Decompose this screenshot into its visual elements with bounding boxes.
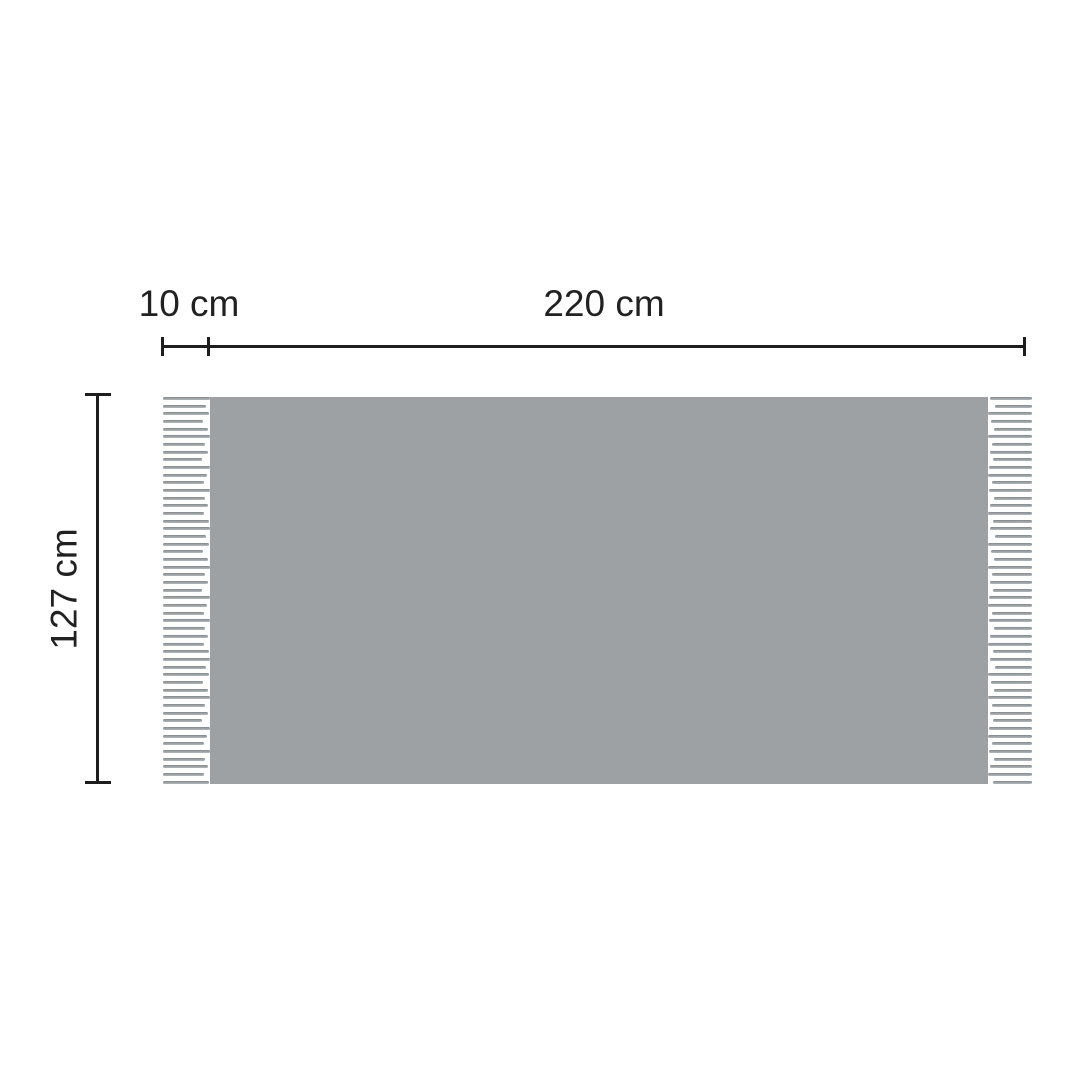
fringe-strand: [163, 451, 208, 454]
fringe-strand: [991, 420, 1032, 423]
dimension-diagram: 10 cm 220 cm 127 cm: [0, 0, 1080, 1080]
fringe-strand: [163, 543, 209, 546]
fringe-strand: [163, 712, 208, 715]
fringe-strand: [989, 727, 1032, 730]
dimension-tick-left: [161, 337, 164, 356]
dimension-tick-bottom: [85, 781, 111, 784]
fringe-strand: [992, 742, 1032, 745]
fringe-strand: [993, 650, 1032, 653]
fringe-strand: [988, 735, 1032, 738]
fringe-strand: [163, 627, 205, 630]
fringe-strand: [992, 481, 1032, 484]
fringe-strand: [163, 428, 208, 431]
fringe-strand: [991, 550, 1032, 553]
fringe-strand: [988, 474, 1032, 477]
fringe-strand: [163, 696, 210, 699]
dimension-tick-right: [1023, 337, 1026, 356]
fringe-strand: [990, 504, 1032, 507]
fringe-strand: [163, 619, 210, 622]
fringe-strand: [994, 689, 1032, 692]
fringe-strand: [163, 512, 204, 515]
fringe-strand: [163, 558, 208, 561]
fringe-strand: [163, 673, 209, 676]
fringe-strand: [995, 535, 1032, 538]
fringe-strand: [163, 481, 204, 484]
fringe-strand: [995, 666, 1032, 669]
vertical-dimension-line: [96, 394, 99, 784]
fringe-strand: [163, 604, 207, 607]
fringe-strand: [994, 758, 1032, 761]
fringe-strand: [163, 550, 203, 553]
blanket-fringe-left: [163, 397, 210, 784]
fringe-strand: [163, 497, 205, 500]
fringe-strand: [163, 666, 206, 669]
horizontal-dimension-line: [162, 345, 1025, 348]
fringe-strand: [163, 474, 207, 477]
fringe-strand: [163, 420, 203, 423]
fringe-strand: [163, 504, 208, 507]
fringe-strand: [993, 781, 1032, 784]
fringe-strand: [994, 558, 1032, 561]
fringe-strand: [163, 650, 209, 653]
body-width-label: 220 cm: [543, 285, 664, 322]
fringe-strand: [163, 405, 206, 408]
dimension-tick-fringe-boundary: [207, 337, 210, 356]
fringe-strand: [992, 443, 1032, 446]
fringe-strand: [163, 765, 208, 768]
fringe-strand: [992, 612, 1032, 615]
fringe-strand: [990, 712, 1032, 715]
fringe-strand: [993, 719, 1032, 722]
fringe-strand: [995, 405, 1032, 408]
fringe-width-label: 10 cm: [139, 285, 240, 322]
fringe-strand: [990, 635, 1032, 638]
fringe-strand: [990, 451, 1032, 454]
fringe-strand: [163, 681, 203, 684]
fringe-strand: [163, 581, 208, 584]
fringe-strand: [163, 435, 210, 438]
dimension-tick-top: [85, 393, 111, 396]
blanket-body: [210, 397, 988, 784]
fringe-strand: [988, 435, 1032, 438]
fringe-strand: [163, 535, 206, 538]
fringe-strand: [990, 658, 1032, 661]
fringe-strand: [989, 619, 1032, 622]
fringe-strand: [988, 696, 1032, 699]
fringe-strand: [990, 581, 1032, 584]
fringe-strand: [993, 458, 1032, 461]
fringe-strand: [994, 428, 1032, 431]
fringe-strand: [163, 458, 202, 461]
fringe-strand: [163, 742, 204, 745]
fringe-strand: [988, 412, 1032, 415]
fringe-strand: [163, 596, 210, 599]
fringe-strand: [988, 673, 1032, 676]
fringe-strand: [989, 750, 1032, 753]
fringe-strand: [992, 704, 1032, 707]
fringe-strand: [163, 573, 205, 576]
fringe-strand: [994, 497, 1032, 500]
fringe-strand: [991, 681, 1032, 684]
fringe-strand: [988, 512, 1032, 515]
fringe-strand: [993, 520, 1032, 523]
fringe-strand: [163, 719, 202, 722]
fringe-strand: [988, 643, 1032, 646]
fringe-strand: [163, 758, 205, 761]
fringe-strand: [988, 543, 1032, 546]
fringe-strand: [163, 397, 210, 400]
fringe-strand: [990, 765, 1032, 768]
fringe-strand: [988, 773, 1032, 776]
fringe-strand: [163, 520, 209, 523]
fringe-strand: [988, 566, 1032, 569]
fringe-strand: [989, 489, 1032, 492]
fringe-strand: [163, 704, 205, 707]
fringe-strand: [163, 443, 205, 446]
fringe-strand: [163, 635, 208, 638]
fringe-strand: [990, 397, 1032, 400]
fringe-strand: [163, 412, 209, 415]
fringe-strand: [163, 781, 209, 784]
fringe-strand: [163, 773, 204, 776]
fringe-strand: [163, 643, 204, 646]
fringe-strand: [990, 527, 1032, 530]
fringe-strand: [163, 589, 202, 592]
fringe-strand: [163, 566, 210, 569]
fringe-strand: [163, 527, 210, 530]
height-label: 127 cm: [46, 528, 83, 649]
fringe-strand: [163, 735, 207, 738]
fringe-strand: [992, 573, 1032, 576]
fringe-strand: [163, 727, 210, 730]
fringe-strand: [163, 489, 210, 492]
fringe-strand: [993, 589, 1032, 592]
fringe-strand: [994, 627, 1032, 630]
fringe-strand: [988, 604, 1032, 607]
fringe-strand: [989, 466, 1032, 469]
fringe-strand: [163, 750, 210, 753]
fringe-strand: [163, 658, 210, 661]
blanket-fringe-right: [988, 397, 1032, 784]
fringe-strand: [163, 612, 204, 615]
fringe-strand: [163, 689, 208, 692]
fringe-strand: [163, 466, 210, 469]
fringe-strand: [989, 596, 1032, 599]
